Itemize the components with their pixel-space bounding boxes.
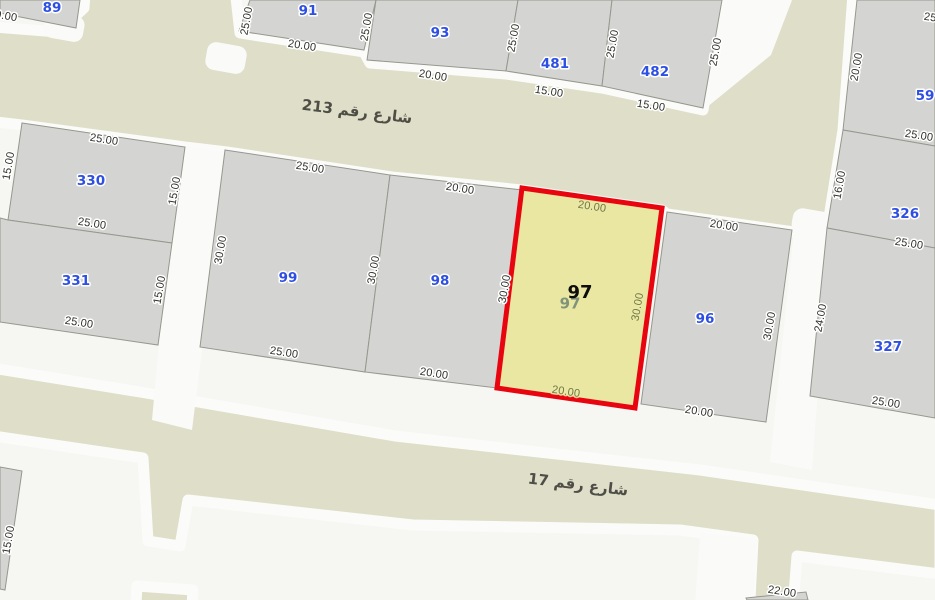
white-street-bottom <box>694 533 757 600</box>
parcel-number-330: 330 <box>77 173 105 189</box>
parcel-number-99: 99 <box>279 270 298 286</box>
parcel-99[interactable] <box>200 150 390 372</box>
parcel-number-96: 96 <box>696 311 715 327</box>
parcel-number-89: 89 <box>43 0 62 16</box>
parcel-number-481: 481 <box>541 56 569 72</box>
parcel-number-91: 91 <box>299 3 318 19</box>
cadastral-map-viewport: 20.0025.0020.0025.0025.0020.0025.0015.00… <box>0 0 935 600</box>
street-17-stub <box>135 586 193 600</box>
cadastral-map[interactable]: 20.0025.0020.0025.0025.0020.0025.0015.00… <box>0 0 935 600</box>
parcel-number-97-bold: 97 <box>567 282 592 303</box>
parcel-number-98: 98 <box>431 273 450 289</box>
parcel-327[interactable] <box>810 228 935 418</box>
parcel-number-331: 331 <box>62 273 90 289</box>
parcel-number-326: 326 <box>891 206 919 222</box>
parcel-number-59: 59 <box>916 88 935 104</box>
parcel-number-93: 93 <box>431 25 450 41</box>
parcel-number-482: 482 <box>641 64 669 80</box>
parcel-number-327: 327 <box>874 339 902 355</box>
parcel-481[interactable] <box>506 0 612 86</box>
